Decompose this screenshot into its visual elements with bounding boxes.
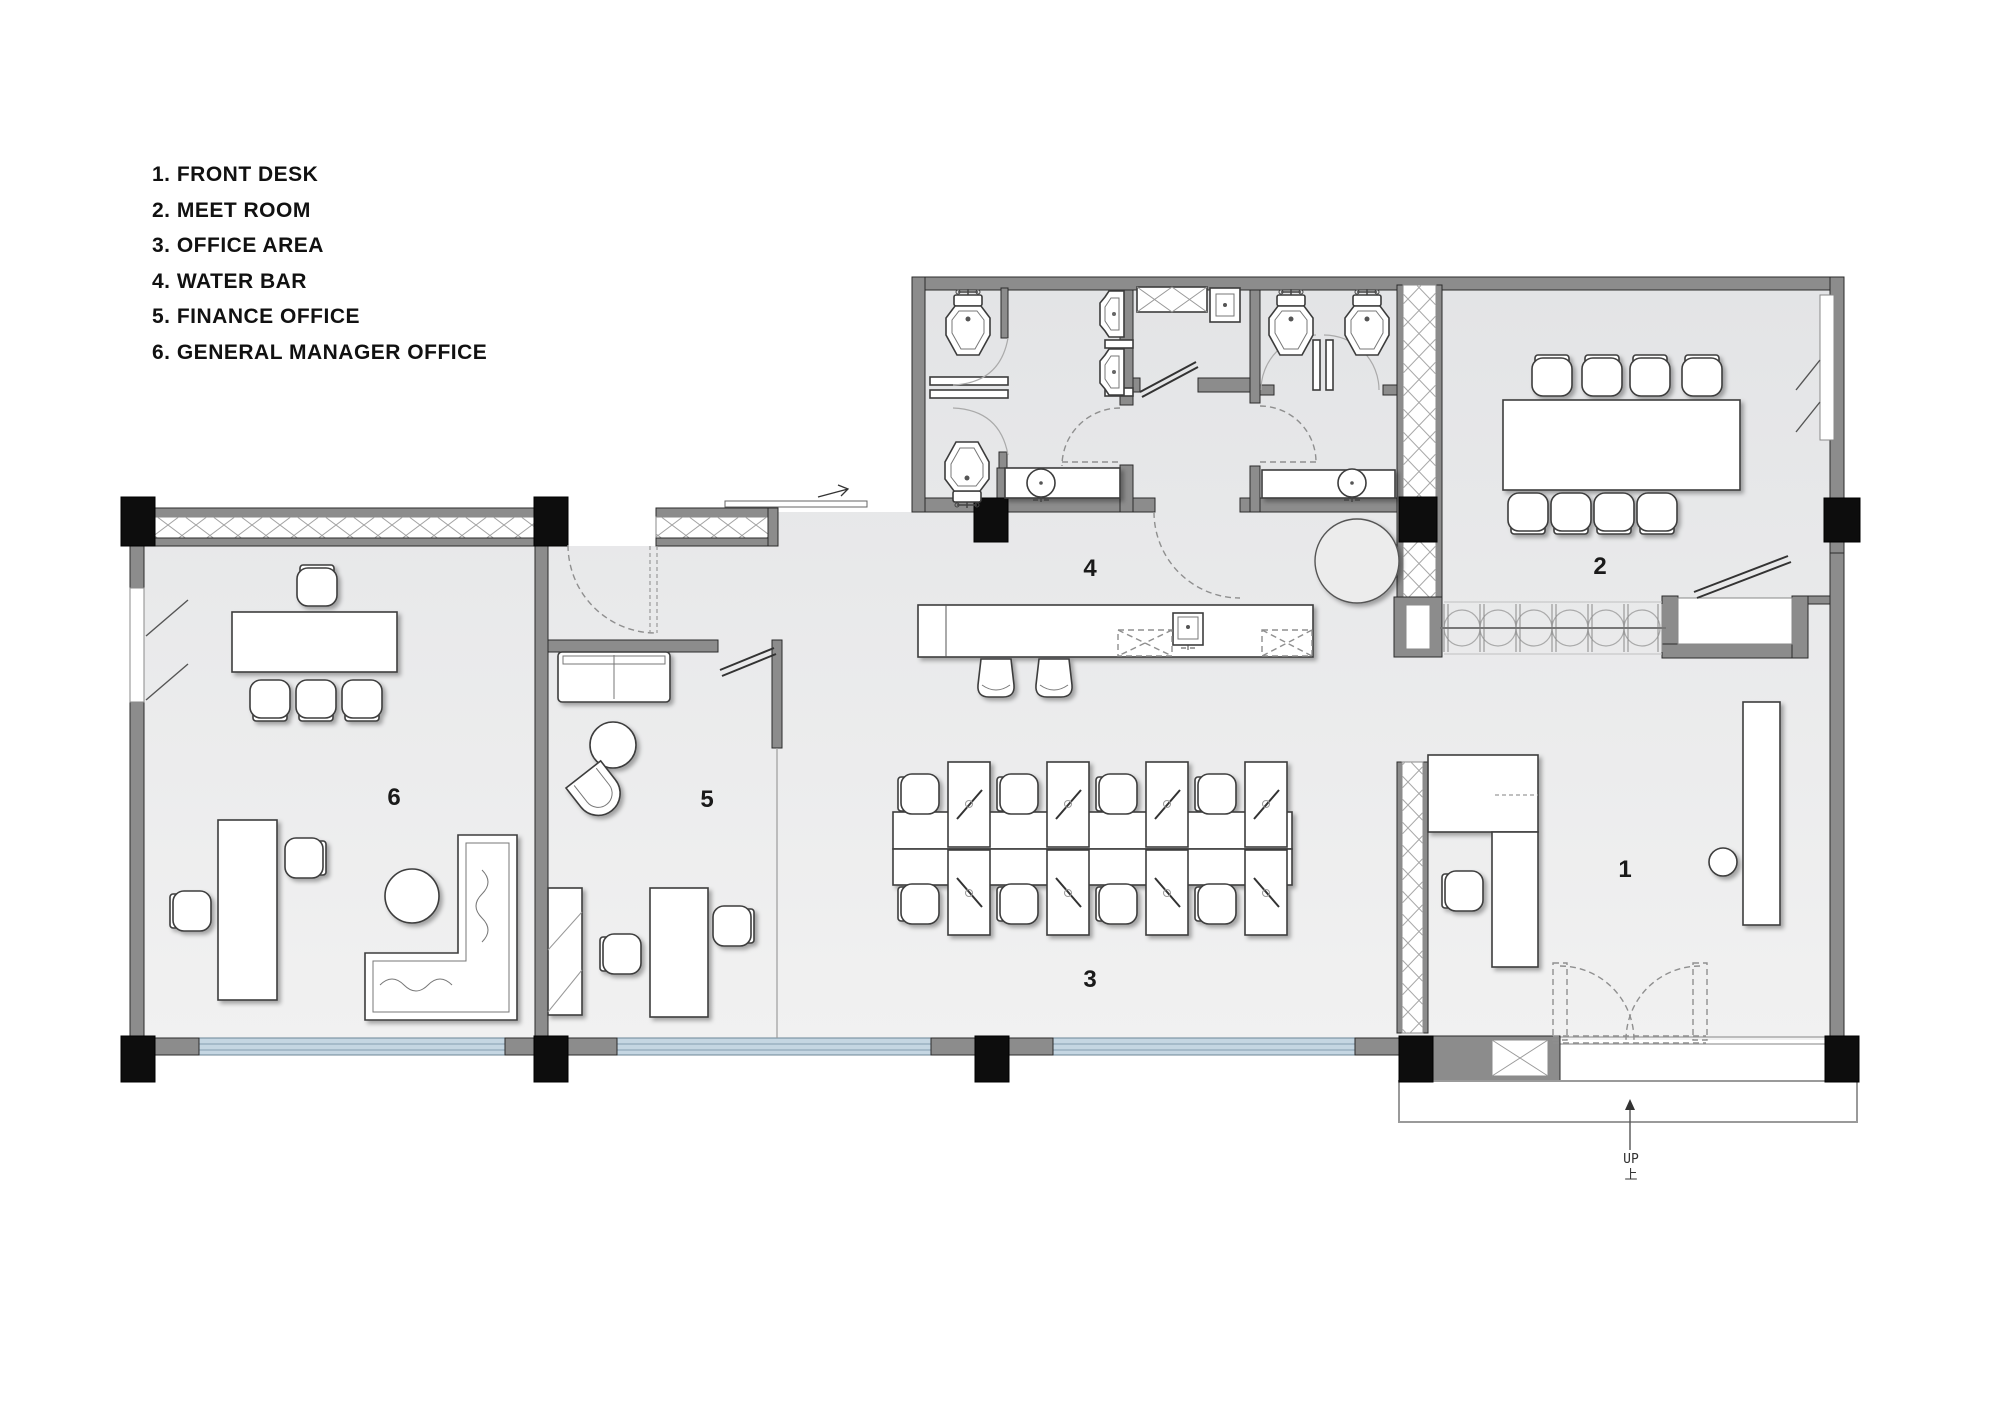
legend-item-office-area: 3. OFFICE AREA [152,234,324,257]
bar-counter [918,605,1313,657]
guest-chair [170,891,211,931]
legend-item-gm-office: 6. GENERAL MANAGER OFFICE [152,341,487,364]
office-chair [600,934,641,974]
legend: 1. FRONT DESK 2. MEET ROOM 3. OFFICE ARE… [152,163,487,364]
reception-desk [1428,755,1538,832]
display-wall [1743,702,1780,925]
window-west [130,588,144,702]
office-chair [997,884,1038,924]
office-chair [285,838,326,878]
office-chair [898,884,939,924]
standing-table [1315,519,1399,603]
sliding-door-corridor [725,501,867,507]
conference-chair [1532,355,1572,396]
workstation-desk [948,762,990,847]
workstation-desk [1245,762,1287,847]
coffee-table [385,869,439,923]
wall-gm-office-east [535,546,548,1040]
legend-item-water-bar: 4. WATER BAR [152,270,307,293]
up-label-en: UP [1623,1152,1639,1167]
chair [342,680,382,721]
urinal-icon [1100,291,1124,337]
storage-cabinet [1137,287,1207,312]
curtain-wall-northwest [155,508,778,546]
workstation-desk [1146,762,1188,847]
room-label-water-bar: 4 [1083,555,1097,582]
conference-table [1503,400,1740,490]
room-label-office-area: 3 [1083,966,1096,993]
bar-stool [978,659,1014,697]
office-chair [1195,774,1236,814]
stool [1709,848,1737,876]
executive-desk [218,820,277,1000]
office-chair [1195,884,1236,924]
wall-wc-west [912,277,925,512]
workstation-desk [1047,850,1089,935]
exterior-wall-east-lower [1830,553,1844,1040]
conference-chair [1551,493,1591,534]
up-label-cn: 上 [1624,1168,1637,1183]
conference-chair [1508,493,1548,534]
meet-room-door-frame [1662,596,1830,658]
desk [650,888,708,1017]
vanity-counter [1262,470,1395,498]
workstation-desk [1146,850,1188,935]
workstation-desk [948,850,990,935]
office-chair [1442,871,1483,911]
conference-chair [1594,493,1634,534]
conference-chair [1630,355,1670,396]
cabinet [548,888,582,1015]
urinal-icon [1100,349,1124,395]
bar-stool [1036,659,1072,697]
conference-chair [1637,493,1677,534]
round-table [590,722,636,768]
floor-plan-page: 1. FRONT DESK 2. MEET ROOM 3. OFFICE ARE… [0,0,2000,1415]
room-label-gm-office: 6 [387,784,400,811]
conference-chair [1682,355,1722,396]
reception-desk [1492,832,1538,967]
exterior-wall-north [912,277,1844,290]
workstation-desk [1047,762,1089,847]
wall-finance-north [548,640,718,652]
door-jamb-finance [772,640,782,748]
vanity-counter [1005,468,1120,498]
chair [296,680,336,721]
meeting-table-gm [232,612,397,672]
stair-annotation: UP 上 [1623,1099,1639,1183]
room-label-finance-office: 5 [700,786,713,813]
room-label-front-desk: 1 [1618,856,1631,883]
legend-item-meet-room: 2. MEET ROOM [152,199,311,222]
office-chair [1096,884,1137,924]
window-east [1820,295,1834,440]
guest-chair [713,906,754,946]
legend-item-finance-office: 5. FINANCE OFFICE [152,305,360,328]
up-arrow-icon [1625,1099,1635,1110]
chair [297,565,337,606]
office-chair [997,774,1038,814]
room-label-meet-room: 2 [1593,553,1606,580]
floor-plan-drawing: 1. FRONT DESK 2. MEET ROOM 3. OFFICE ARE… [0,0,2000,1415]
shaft-column-strip [1394,285,1442,657]
conference-chair [1582,355,1622,396]
office-chair [1096,774,1137,814]
office-chair [898,774,939,814]
legend-item-front-desk: 1. FRONT DESK [152,163,318,186]
workstation-desk [1245,850,1287,935]
chair [250,680,290,721]
